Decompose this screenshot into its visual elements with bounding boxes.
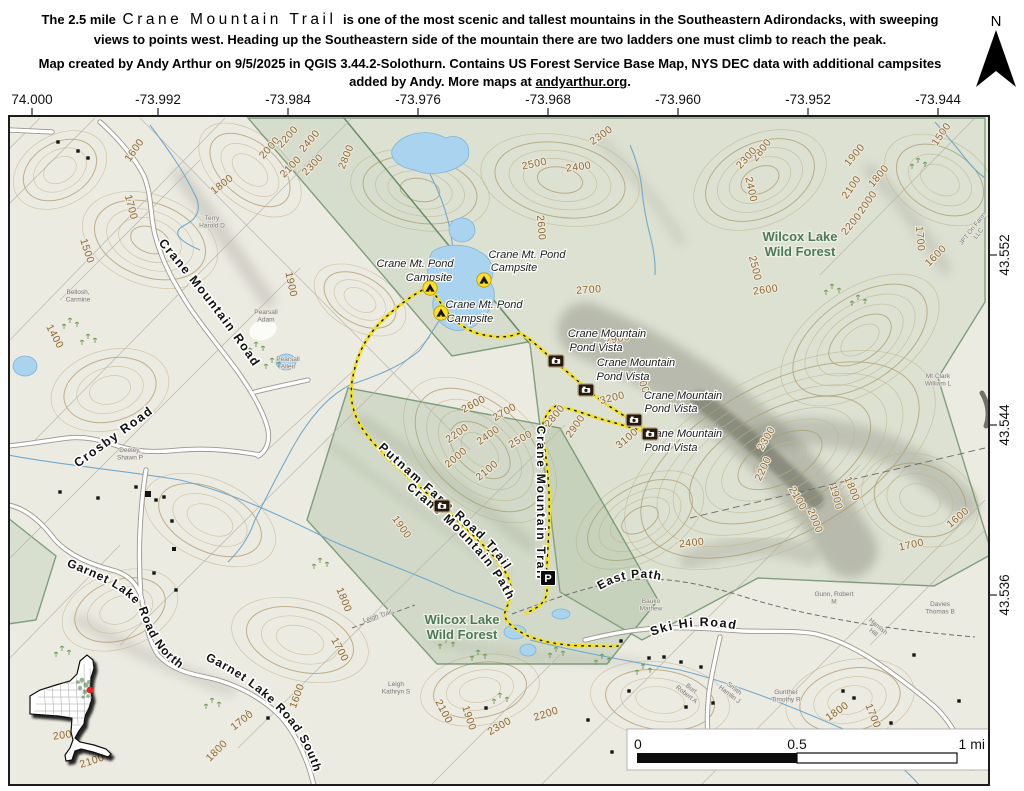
parcel-owner-label: Bellosh,Carmine — [66, 289, 91, 304]
building — [154, 498, 157, 501]
topographic-map: 1600180017001500140019002000220024002100… — [0, 0, 1024, 791]
map-document: 1600180017001500140019002000220024002100… — [0, 0, 1024, 791]
scale-bar: 0 0.5 1 mi — [627, 729, 995, 770]
scale-half-label: 0.5 — [787, 736, 807, 752]
trail-name: Crane Mountain Trail — [120, 11, 340, 28]
scale-zero-label: 0 — [634, 736, 642, 752]
description-prefix: The 2.5 mile — [41, 12, 115, 27]
poi-label: Campsite — [447, 313, 493, 325]
north-arrow: N — [976, 13, 1016, 87]
poi-label: Crane Mt. Pond — [376, 258, 454, 270]
scale-one-mile-label: 1 mi — [959, 736, 985, 752]
building — [852, 696, 855, 699]
campsite-icon — [423, 281, 437, 295]
map-credit: Map created by Andy Arthur on 9/5/2025 i… — [22, 55, 958, 92]
poi-label: Pond Vista — [644, 442, 697, 454]
building — [484, 706, 487, 709]
building — [647, 656, 650, 659]
contour-elevation-label: 2700 — [576, 283, 602, 297]
building — [145, 491, 151, 497]
building — [134, 485, 137, 488]
longitude-label: -73.984 — [265, 92, 311, 107]
building — [162, 495, 165, 498]
building — [841, 689, 844, 692]
building — [152, 571, 155, 574]
andyarthur-link[interactable]: andyarthur.org — [536, 74, 628, 89]
poi-label: Pond Vista — [644, 403, 697, 415]
building — [679, 660, 682, 663]
poi-label: Crane Mountain — [644, 390, 722, 402]
building — [174, 588, 177, 591]
area-label: Wilcox Lake — [424, 612, 499, 627]
latitude-label: 43.536 — [997, 574, 1012, 615]
camera-vista-icon — [578, 384, 594, 396]
longitude-label: 74.000 — [11, 92, 52, 107]
building — [619, 639, 622, 642]
longitude-label: -73.976 — [395, 92, 441, 107]
map-description: The 2.5 mile Crane Mountain Trail is one… — [22, 9, 958, 49]
building — [58, 490, 61, 493]
building — [684, 705, 687, 708]
scale-bar-empty-segment — [797, 753, 957, 763]
longitude-label: -73.944 — [915, 92, 961, 107]
inset-location-dot — [87, 687, 94, 694]
area-label: Wilcox Lake — [762, 229, 837, 244]
building — [266, 716, 269, 719]
poi-label: Campsite — [491, 262, 537, 274]
longitude-label: -73.952 — [785, 92, 831, 107]
poi-label: Crane Mountain — [568, 328, 646, 340]
camera-vista-icon — [434, 500, 450, 512]
campsite-icon — [434, 306, 448, 320]
map-content: 1600180017001500140019002000220024002100… — [0, 105, 1012, 790]
contour-elevation-label: 1700 — [913, 226, 927, 252]
building — [662, 655, 665, 658]
camera-vista-icon — [548, 355, 564, 367]
building — [96, 496, 99, 499]
parcel-owner-label: GuntherTimothy R — [771, 689, 801, 704]
campsite-icon — [477, 273, 491, 287]
poi-label: Crane Mountain — [597, 357, 675, 369]
building — [586, 718, 589, 721]
trail-label: Crane Mountain Trail — [534, 426, 548, 581]
area-label: Wild Forest — [427, 627, 498, 642]
poi-label: Crane Mt. Pond — [445, 299, 523, 311]
svg-text:P: P — [544, 573, 551, 585]
building — [86, 156, 89, 159]
parcel-owner-label: Deeley,Shawn P — [117, 447, 143, 462]
building — [627, 689, 630, 692]
contour-elevation-label: 2600 — [534, 215, 548, 241]
north-arrow-icon — [976, 30, 1016, 87]
latitude-label: 43.552 — [997, 234, 1012, 275]
building — [711, 701, 714, 704]
camera-vista-icon — [626, 414, 642, 426]
parcel-owner-label: Mt ClarkWilliam L — [925, 373, 952, 388]
latitude-label: 43.544 — [997, 404, 1012, 446]
poi-label: Crane Mt. Pond — [488, 249, 566, 261]
building — [170, 519, 173, 522]
longitude-label: -73.992 — [135, 92, 181, 107]
parking-icon: P — [541, 571, 556, 586]
camera-vista-icon — [642, 428, 658, 440]
building — [76, 149, 79, 152]
building — [610, 750, 613, 753]
north-label: N — [991, 13, 1002, 30]
building — [172, 547, 176, 551]
longitude-label: -73.960 — [655, 92, 701, 107]
longitude-label: -73.968 — [525, 92, 571, 107]
scale-bar-filled-segment — [637, 753, 797, 763]
building — [699, 665, 702, 668]
poi-label: Pond Vista — [569, 342, 622, 354]
parcel-owner-label: BaukoMathew — [640, 598, 663, 613]
area-label: Wild Forest — [765, 244, 836, 259]
credit-text: Map created by Andy Arthur on 9/5/2025 i… — [39, 56, 942, 89]
building — [889, 721, 892, 724]
building — [957, 699, 960, 702]
building — [56, 140, 59, 143]
poi-label: Pond Vista — [596, 371, 649, 383]
credit-period: . — [627, 74, 631, 89]
building — [912, 653, 915, 656]
